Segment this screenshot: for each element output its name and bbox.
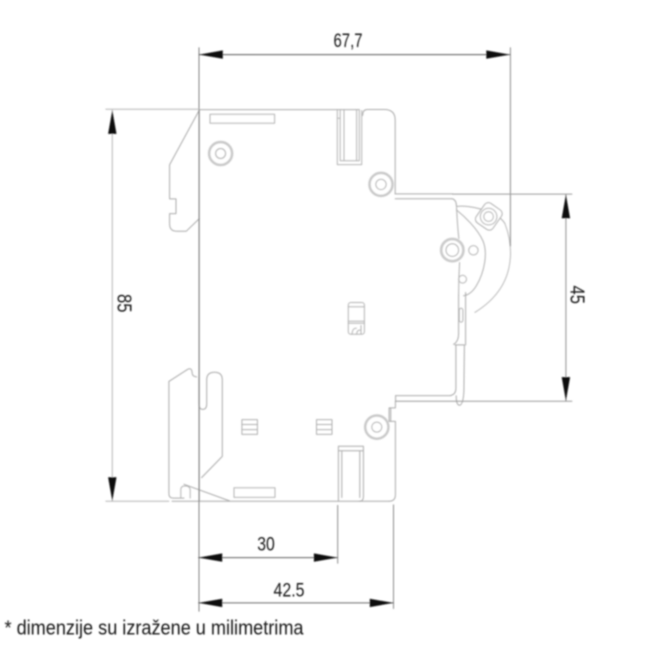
svg-text:* dimenzije su izražene u mili: * dimenzije su izražene u milimetrima: [5, 618, 305, 640]
svg-text:67,7: 67,7: [334, 31, 363, 52]
svg-text:30: 30: [257, 535, 275, 556]
svg-text:45: 45: [566, 285, 588, 304]
svg-text:85: 85: [113, 294, 135, 313]
svg-text:42.5: 42.5: [274, 581, 305, 602]
